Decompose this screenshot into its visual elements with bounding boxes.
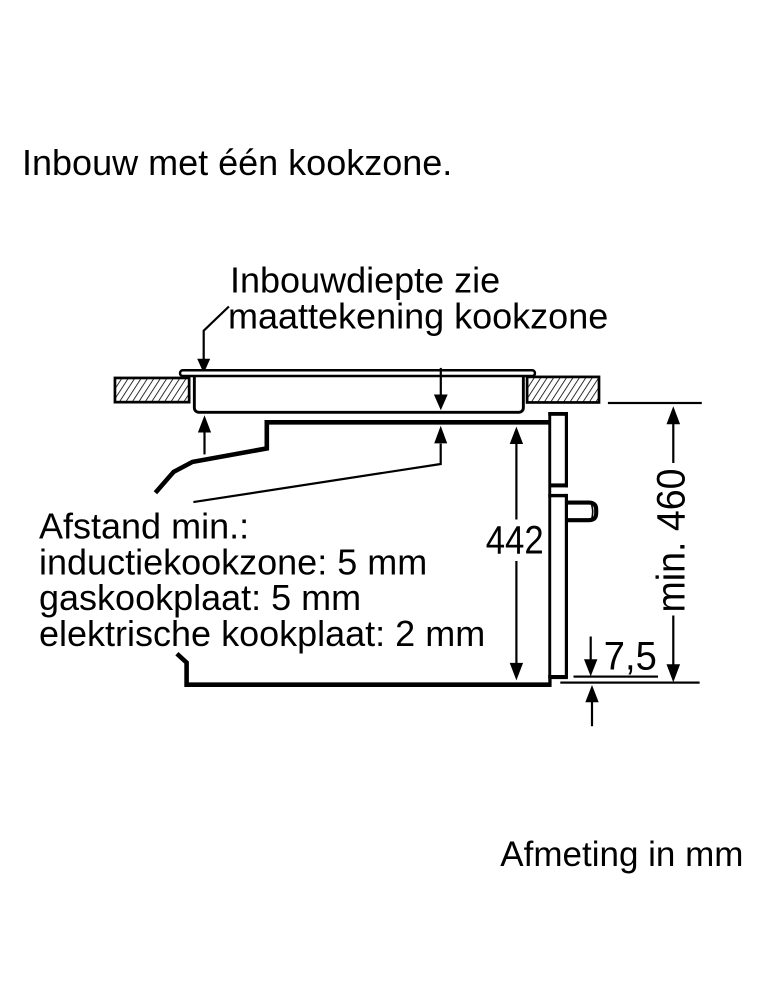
svg-text:elektrische kookplaat: 2 mm: elektrische kookplaat: 2 mm (39, 613, 485, 654)
svg-text:442: 442 (486, 518, 544, 562)
svg-text:inductiekookzone: 5 mm: inductiekookzone: 5 mm (39, 541, 427, 582)
svg-text:gaskookplaat: 5 mm: gaskookplaat: 5 mm (39, 577, 361, 618)
svg-text:Inbouwdiepte zie: Inbouwdiepte zie (230, 260, 500, 301)
svg-text:Inbouw met één kookzone.: Inbouw met één kookzone. (22, 142, 452, 183)
svg-text:Afstand min.:: Afstand min.: (39, 505, 249, 546)
svg-text:maattekening kookzone: maattekening kookzone (228, 296, 608, 337)
svg-text:min. 460: min. 460 (650, 469, 694, 613)
svg-text:7,5: 7,5 (604, 635, 657, 679)
svg-text:Afmeting in mm: Afmeting in mm (500, 835, 743, 874)
